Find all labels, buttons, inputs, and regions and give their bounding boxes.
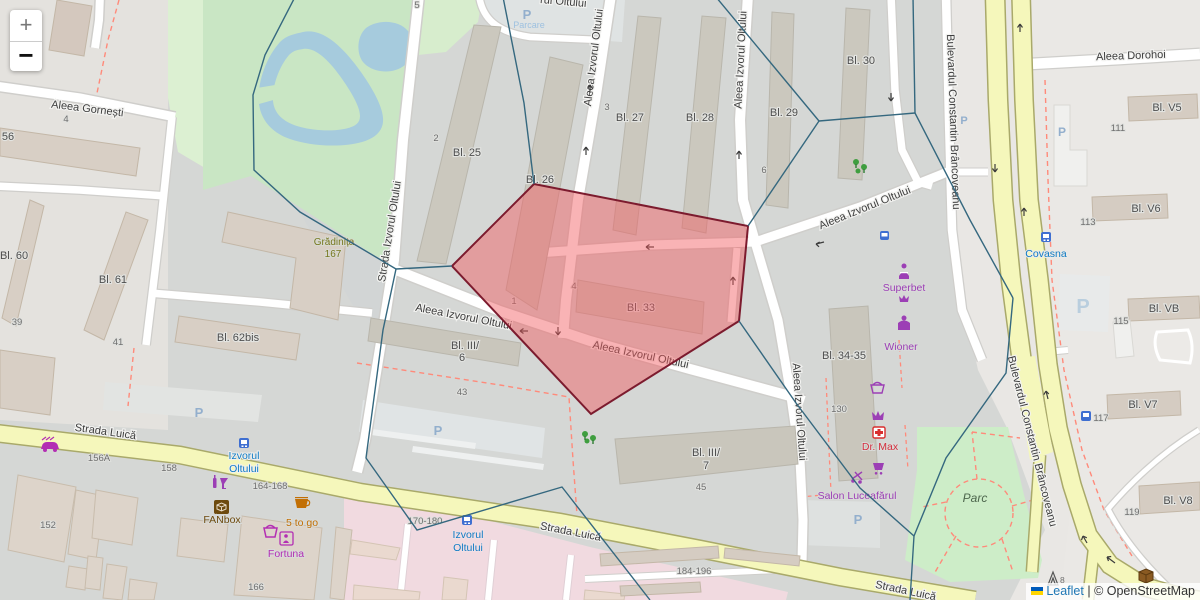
svg-text:167: 167	[325, 249, 342, 260]
svg-text:41: 41	[113, 337, 124, 348]
svg-text:170-180: 170-180	[408, 516, 443, 527]
svg-text:Oltului: Oltului	[229, 463, 259, 475]
svg-text:Bl. 25: Bl. 25	[453, 147, 481, 159]
svg-text:184-196: 184-196	[677, 566, 712, 577]
svg-text:Bl. 30: Bl. 30	[847, 55, 875, 67]
svg-text:P: P	[434, 423, 443, 438]
svg-text:Bl. III/: Bl. III/	[451, 340, 480, 352]
svg-text:Izvorul: Izvorul	[229, 450, 260, 462]
svg-text:6: 6	[459, 352, 465, 364]
svg-text:156A: 156A	[88, 453, 111, 464]
svg-text:P: P	[195, 405, 204, 420]
svg-text:164-168: 164-168	[253, 481, 288, 492]
svg-text:Salon Luceafărul: Salon Luceafărul	[818, 490, 897, 502]
svg-text:P: P	[960, 115, 967, 127]
svg-text:Parcare: Parcare	[513, 20, 545, 30]
svg-text:Bl. III/: Bl. III/	[692, 447, 721, 459]
svg-text:7: 7	[703, 460, 709, 472]
svg-text:P: P	[1058, 125, 1066, 139]
svg-text:Bl. VB: Bl. VB	[1149, 303, 1180, 315]
svg-text:Oltului: Oltului	[453, 542, 483, 554]
svg-text:Fortuna: Fortuna	[268, 548, 304, 560]
svg-text:56: 56	[2, 131, 14, 143]
svg-text:Wioner: Wioner	[884, 341, 918, 353]
svg-text:P: P	[854, 512, 863, 527]
svg-text:Bl. 29: Bl. 29	[770, 107, 798, 119]
svg-text:Covasna: Covasna	[1025, 248, 1067, 260]
svg-text:158: 158	[161, 463, 177, 474]
svg-text:Superbet: Superbet	[883, 282, 926, 294]
svg-text:FANbox: FANbox	[203, 514, 241, 526]
svg-text:45: 45	[696, 482, 707, 493]
svg-text:Bl. 34-35: Bl. 34-35	[822, 350, 866, 362]
svg-text:Bl. V7: Bl. V7	[1128, 399, 1157, 411]
svg-text:5 to go: 5 to go	[286, 517, 318, 529]
svg-text:111: 111	[1111, 123, 1125, 134]
svg-text:130: 130	[831, 404, 847, 415]
svg-text:Bl. V6: Bl. V6	[1131, 203, 1160, 215]
svg-text:Bl. 28: Bl. 28	[686, 112, 714, 124]
svg-text:39: 39	[12, 317, 23, 328]
svg-text:166: 166	[248, 582, 264, 593]
svg-text:Bl. V8: Bl. V8	[1163, 495, 1192, 507]
svg-text:Grădinița: Grădinița	[314, 237, 355, 248]
svg-text:Aleea Dorohoi: Aleea Dorohoi	[1096, 49, 1166, 63]
svg-text:Parc: Parc	[963, 491, 988, 505]
svg-text:Bl. V5: Bl. V5	[1152, 102, 1181, 114]
svg-text:Bl. 27: Bl. 27	[616, 112, 644, 124]
svg-text:152: 152	[40, 520, 56, 531]
svg-text:115: 115	[1113, 316, 1128, 327]
svg-text:5: 5	[414, 0, 419, 11]
svg-text:Bl. 60: Bl. 60	[0, 250, 28, 262]
svg-text:6: 6	[761, 165, 766, 176]
svg-text:3: 3	[604, 102, 609, 113]
svg-text:4: 4	[63, 114, 68, 125]
svg-text:117: 117	[1093, 413, 1108, 424]
svg-text:Dr. Max: Dr. Max	[862, 441, 899, 453]
svg-text:119: 119	[1124, 507, 1139, 518]
svg-text:Bl. 62bis: Bl. 62bis	[217, 332, 260, 344]
svg-text:P: P	[1076, 296, 1089, 318]
svg-text:Izvorul: Izvorul	[453, 529, 484, 541]
svg-text:Bl. 61: Bl. 61	[99, 274, 127, 286]
svg-text:43: 43	[457, 387, 468, 398]
svg-text:113: 113	[1080, 217, 1095, 228]
svg-text:2: 2	[433, 133, 438, 144]
